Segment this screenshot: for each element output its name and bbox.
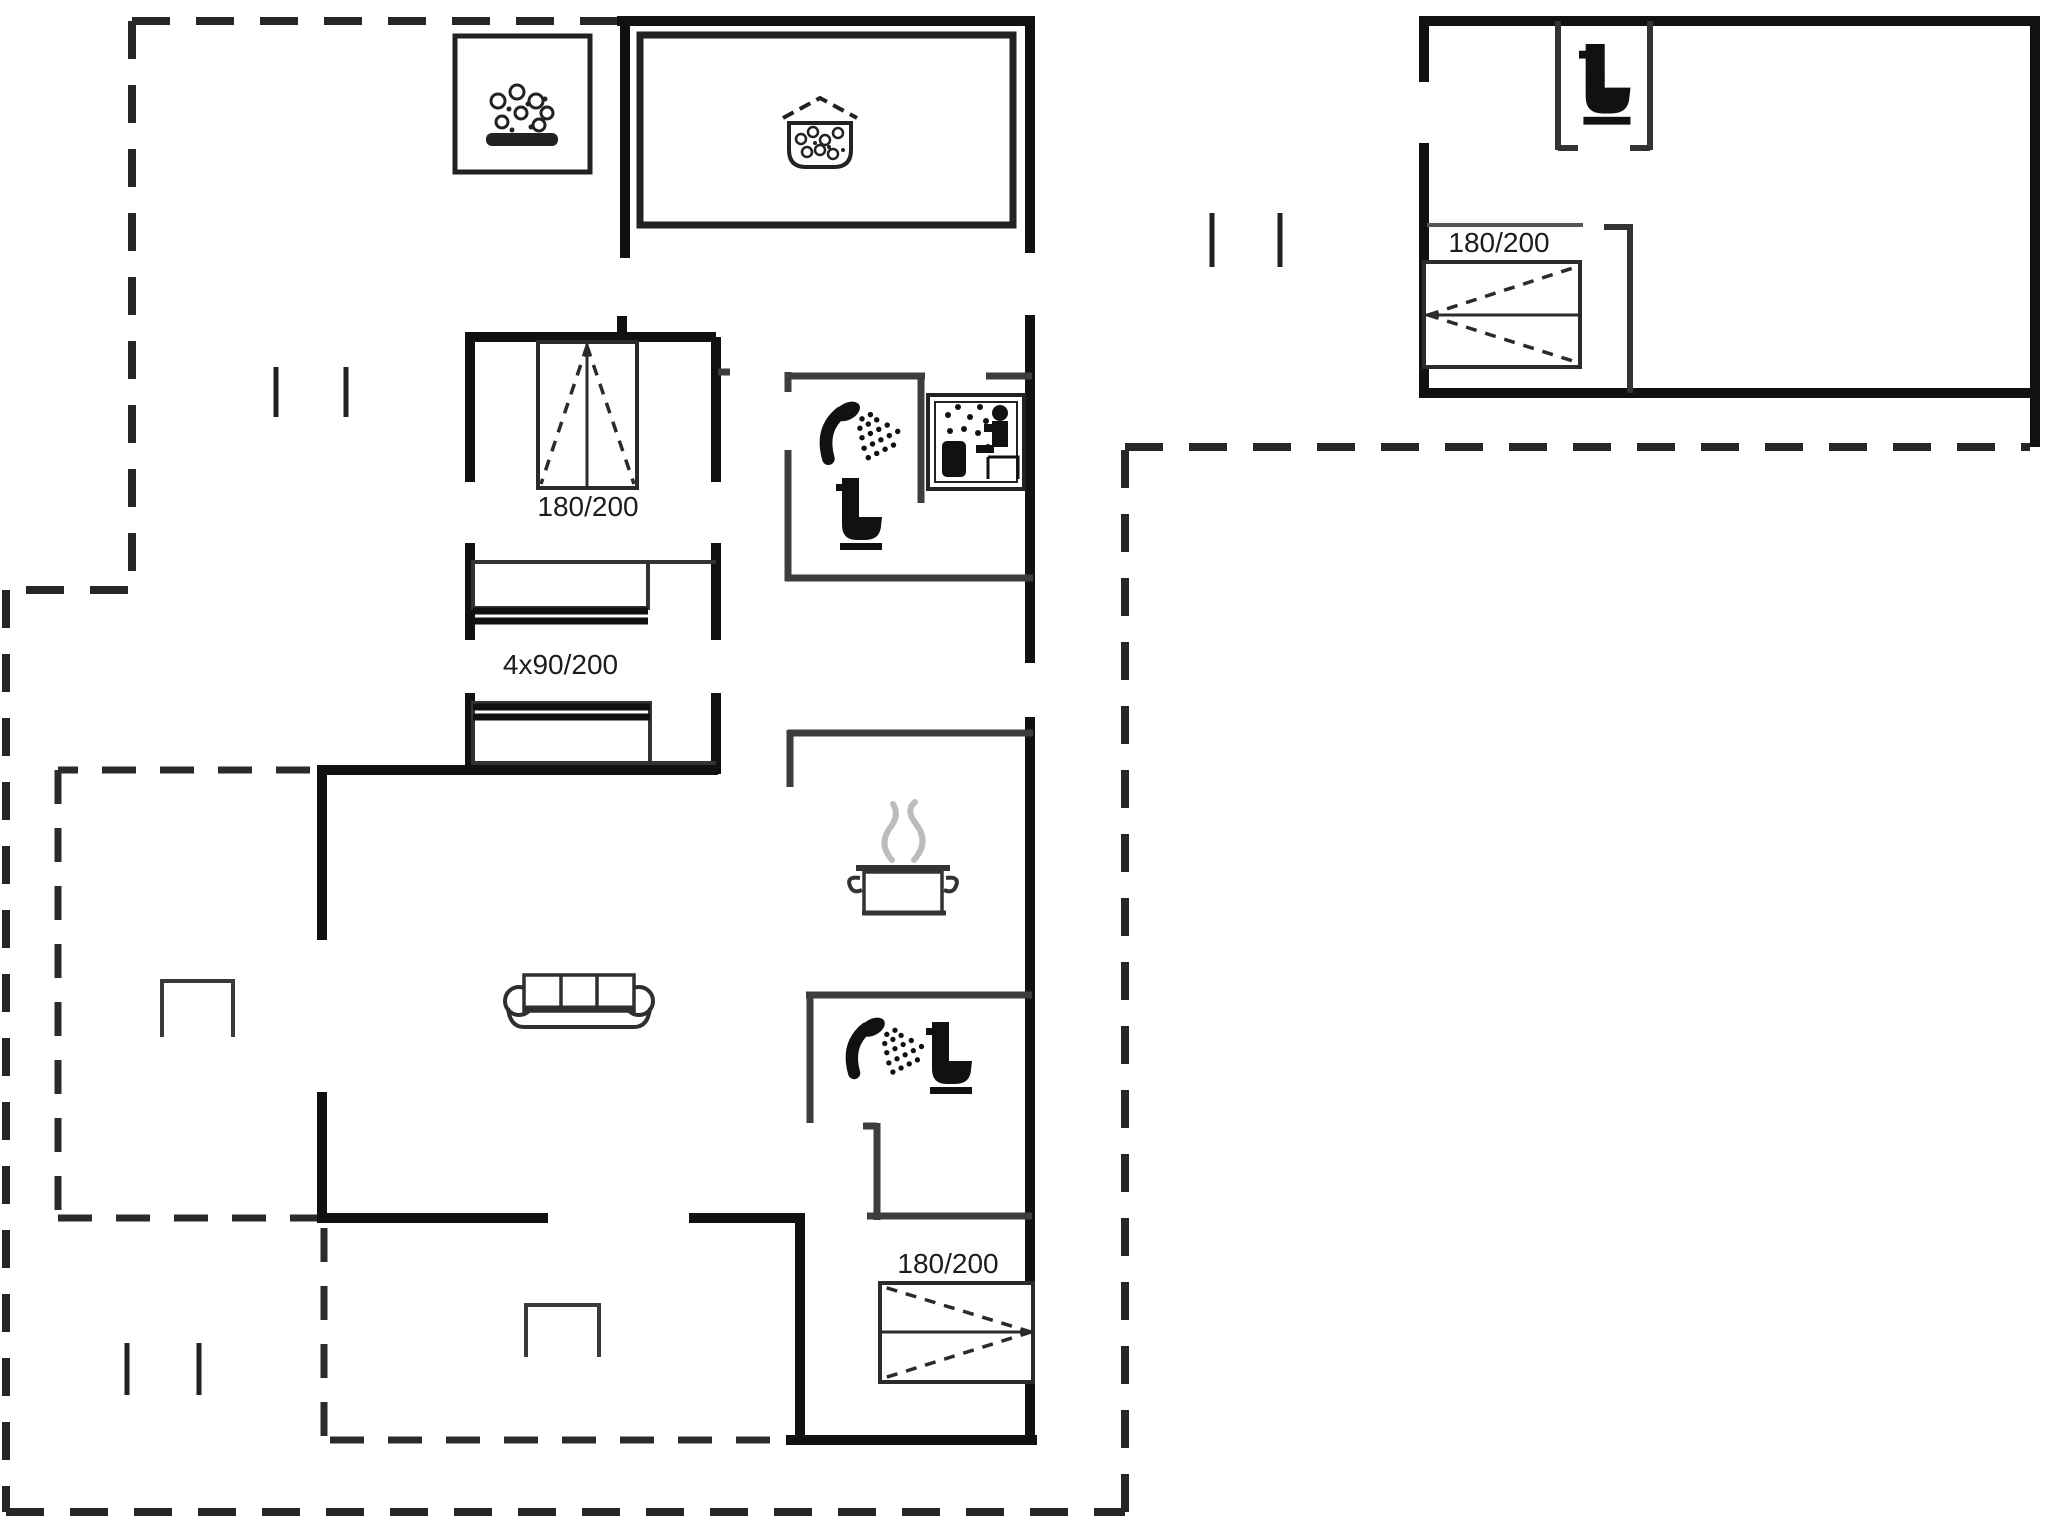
hot-tub: [455, 36, 590, 172]
shower-icon: [826, 398, 900, 461]
toilet-icon: [926, 1022, 972, 1094]
bunk-beds-dimension-label: 4x90/200: [478, 649, 643, 681]
cooking-pot-icon: [849, 802, 957, 913]
table-mark: [526, 1305, 599, 1357]
bed-master: [538, 342, 637, 488]
sauna-icon: [928, 395, 1024, 489]
sofa-icon: [505, 975, 653, 1027]
terrace-table-marks: [162, 981, 599, 1357]
floor-plan: 180/200 4x90/200 180/200 180/200: [0, 0, 2048, 1536]
table-mark: [162, 981, 233, 1037]
toilet-icon: [1579, 44, 1631, 125]
bed-annex-dimension-label: 180/200: [1447, 227, 1551, 259]
spa-pool: [640, 35, 1013, 225]
toilet-icon: [836, 478, 882, 550]
hot-tub-outline: [455, 36, 590, 172]
shower-icon: [852, 1014, 924, 1075]
bed-master-dimension-label: 180/200: [537, 491, 639, 523]
exterior-walls: [320, 16, 2035, 1445]
bed-south: [880, 1283, 1033, 1382]
interior-walls: [718, 372, 1033, 1220]
bed-south-dimension-label: 180/200: [894, 1248, 1002, 1280]
terrace-boundary-inner: [58, 770, 782, 1440]
floor-plan-drawing: [0, 0, 2048, 1536]
